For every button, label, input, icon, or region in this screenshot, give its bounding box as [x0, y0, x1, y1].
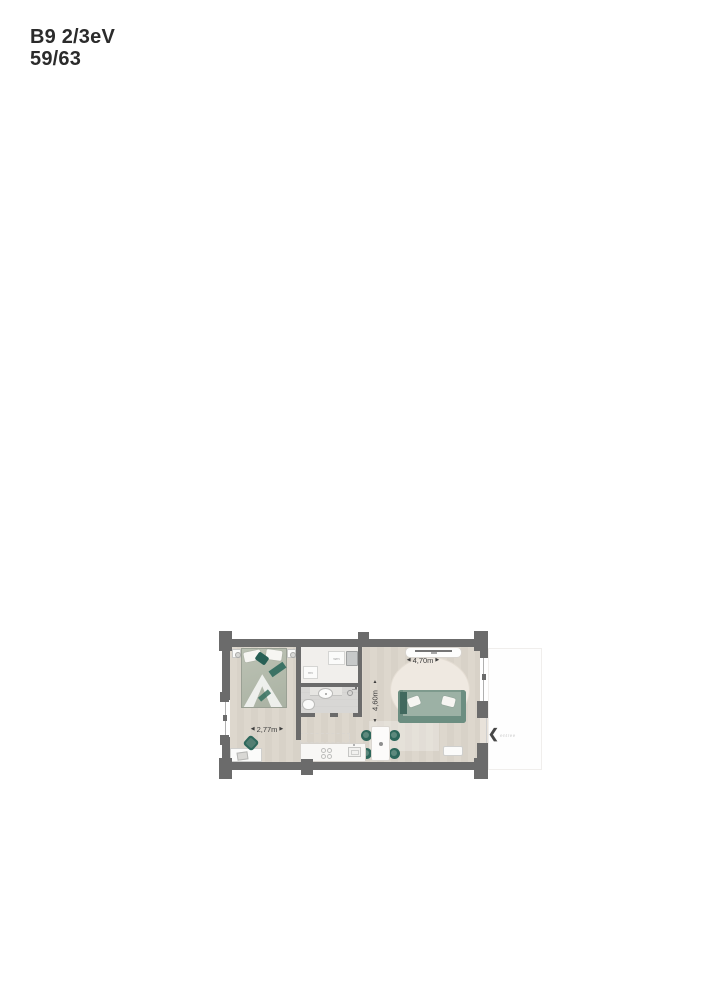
shower-arm — [352, 689, 357, 690]
dimension-bedroom-width: ◀ 2,77m ▶ — [241, 724, 293, 734]
pilaster-top-left — [219, 631, 232, 651]
cooktop-burner — [321, 754, 326, 759]
unit-index: 59/63 — [30, 48, 115, 70]
sofa-throw — [400, 692, 407, 714]
kitchen-sink-basin — [351, 750, 359, 755]
arrow-left-icon: ◀ — [251, 727, 255, 732]
dimension-value: 4,70m — [413, 656, 434, 665]
washer-label: wm — [329, 652, 344, 664]
unit-code: B9 2/3eV — [30, 26, 115, 48]
pilaster-bottom-left — [219, 758, 232, 779]
wall-bottom — [222, 762, 488, 770]
bed-duvet-fold — [242, 667, 286, 707]
arrow-right-icon: ▶ — [279, 727, 283, 732]
dimension-living-width: ◀ 4,70m ▶ — [398, 655, 448, 665]
desk — [230, 748, 262, 762]
nightstand-right — [287, 649, 296, 658]
wall-bath-bottom-seg — [353, 713, 362, 717]
bed — [241, 648, 287, 708]
nightstand-left — [232, 649, 241, 658]
pilaster-right-a — [477, 701, 488, 718]
shower-head-icon — [347, 690, 353, 696]
pilaster-left-b — [220, 735, 229, 745]
toilet — [302, 699, 315, 710]
bed-teal-throw — [269, 662, 287, 677]
window-mullion-right — [482, 674, 486, 680]
kitchen-upper-cabinets — [300, 733, 350, 743]
entree-arrow-icon: ❮ — [488, 727, 499, 741]
arrow-up-icon: ▲ — [373, 680, 378, 685]
wall-bath-bottom-seg — [330, 713, 338, 717]
gallery-outline — [488, 648, 542, 770]
pilaster-top-right — [474, 631, 488, 651]
pilaster-bottom-right — [474, 758, 488, 779]
wall-top — [222, 639, 488, 647]
wall-bath-bottom-seg — [296, 713, 315, 717]
cooktop-burner — [327, 748, 332, 753]
cooktop-burner — [327, 754, 332, 759]
arrow-down-icon: ▼ — [373, 719, 378, 724]
sofa-back — [398, 716, 466, 723]
window-glass-line — [483, 658, 484, 702]
sink — [318, 688, 333, 699]
dining-table — [371, 726, 390, 761]
wall-bedroom-partition — [296, 647, 301, 740]
entree-label: entree — [500, 733, 526, 739]
arrow-right-icon: ▶ — [435, 658, 439, 663]
dimension-value: 2,77m — [257, 725, 278, 734]
window-right — [480, 658, 488, 702]
dimension-depth-arrow-down: ▼ — [370, 718, 380, 724]
wall-tech-bath-divider — [301, 683, 358, 687]
kitchen-sink — [348, 747, 361, 757]
sofa-arm-right — [461, 690, 466, 723]
window-mullion-left — [223, 715, 227, 721]
dining-chair — [389, 748, 400, 759]
dimension-depth-arrow-up: ▲ — [370, 679, 380, 685]
floorplan: wm mv — [219, 631, 541, 781]
shower-valve — [355, 687, 357, 689]
dimension-value: 4,60m — [371, 690, 380, 711]
sink-drain — [325, 693, 327, 695]
door-line — [486, 718, 487, 745]
vent-box: mv — [303, 666, 318, 679]
ventilation-unit — [346, 651, 358, 666]
washer-box: wm — [328, 651, 345, 665]
pilaster-right-b — [477, 743, 488, 758]
dimension-living-depth: 4,60m — [371, 686, 380, 716]
entry-door-opening — [480, 718, 488, 745]
pilaster-left-a — [220, 692, 229, 702]
desk-chair-seat — [245, 737, 256, 748]
sofa — [398, 690, 466, 723]
table-centerpiece — [379, 742, 383, 746]
pilaster-top-mid — [358, 632, 369, 647]
vent-label: mv — [304, 667, 317, 678]
entry-bench — [443, 746, 463, 756]
cooktop-burner — [321, 748, 326, 753]
arrow-left-icon: ◀ — [407, 658, 411, 663]
pilaster-bottom-mid — [301, 759, 313, 775]
dining-chair — [389, 730, 400, 741]
page-title: B9 2/3eV 59/63 — [30, 26, 115, 70]
laptop — [236, 751, 248, 760]
wall-bath-living — [358, 647, 362, 717]
tv-stand — [431, 652, 437, 654]
faucet-icon — [353, 744, 355, 746]
